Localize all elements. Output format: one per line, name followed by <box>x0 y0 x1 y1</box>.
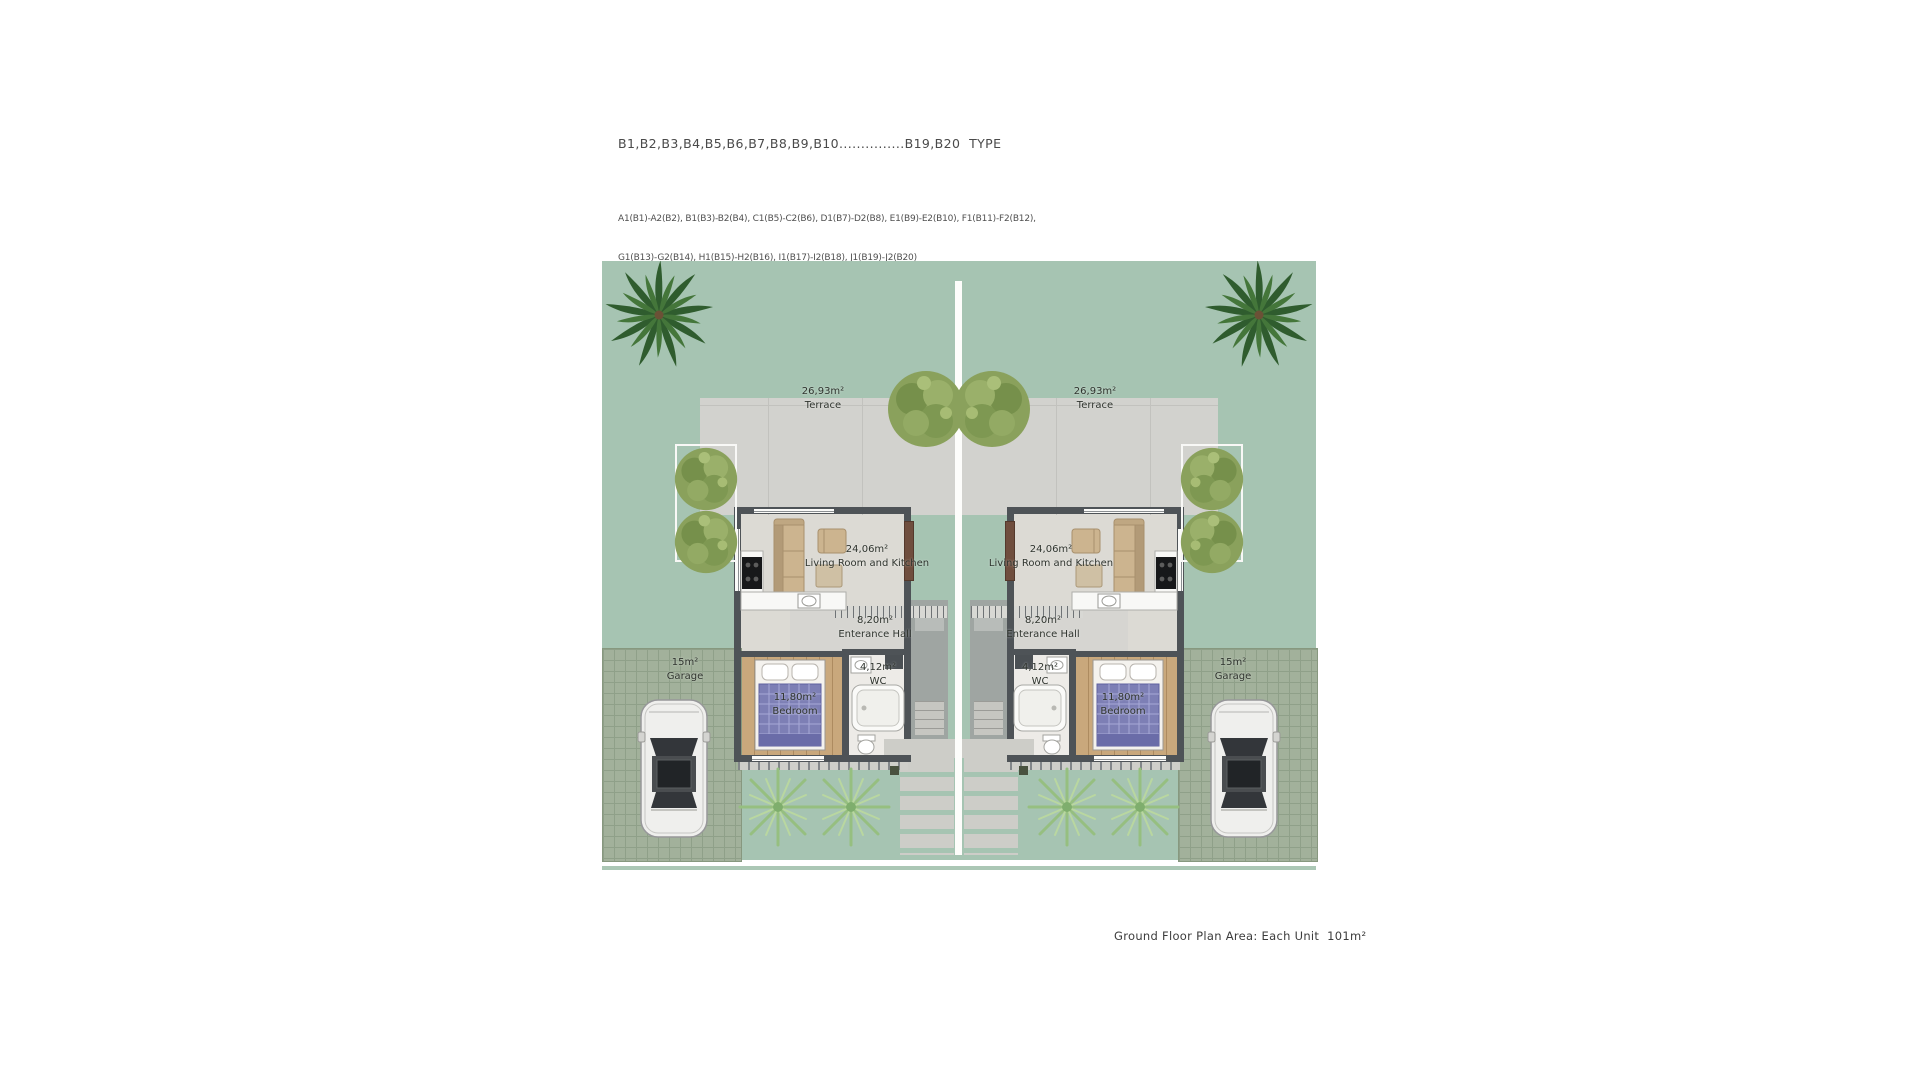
wall-wc-top-right <box>1007 649 1076 655</box>
edge-strip-right <box>1010 762 1180 770</box>
porch-steps-left <box>915 701 944 735</box>
planter-tree-left-2 <box>675 511 737 573</box>
terrace-area-value: 26,93m² <box>1035 385 1155 399</box>
bedroom-area-value: 11,80m² <box>745 691 845 705</box>
terrace-room-name: Terrace <box>1035 399 1155 413</box>
floor-plan-page: B1,B2,B3,B4,B5,B6,B7,B8,B9,B10..........… <box>0 0 1920 1080</box>
edge-strip-left <box>738 762 908 770</box>
garage-label-right: 15m² Garage <box>1183 656 1283 683</box>
bush-left-2 <box>813 769 889 845</box>
garage-area-value: 15m² <box>1183 656 1283 670</box>
window-bedroom-right <box>1094 756 1166 761</box>
party-line <box>955 281 962 855</box>
wall-bedroom-top-right <box>1069 651 1184 657</box>
gate-post-left <box>890 766 899 775</box>
terrace-label-left: 26,93m² Terrace <box>763 385 883 412</box>
bedroom-area-value: 11,80m² <box>1073 691 1173 705</box>
unit-pairing-line-1: A1(B1)-A2(B2), B1(B3)-B2(B4), C1(B5)-C2(… <box>618 213 1036 226</box>
plan-bottom-edge <box>602 866 1316 870</box>
walkway-left <box>900 758 954 855</box>
hall-room-name: Enterance Hall <box>805 628 945 642</box>
living-room-name: Living Room and Kitchen <box>787 557 947 571</box>
living-label-left: 24,06m² Living Room and Kitchen <box>787 543 947 570</box>
living-area-value: 24,06m² <box>787 543 947 557</box>
terrace-label-right: 26,93m² Terrace <box>1035 385 1155 412</box>
wall-bedroom-top-left <box>734 651 849 657</box>
terrace-area-value: 26,93m² <box>763 385 883 399</box>
garage-room-name: Garage <box>1183 670 1283 684</box>
wc-room-name: WC <box>838 675 918 689</box>
palm-tree-left <box>605 261 713 368</box>
wc-area-value: 4,12m² <box>838 661 918 675</box>
window-terrace-left <box>754 509 834 513</box>
hall-label-left: 8,20m² Enterance Hall <box>805 614 945 641</box>
gate-post-right <box>1019 766 1028 775</box>
terrace-seam-v1 <box>768 398 769 515</box>
living-area-value: 24,06m² <box>971 543 1131 557</box>
hall-label-right: 8,20m² Enterance Hall <box>973 614 1113 641</box>
wc-label-right: 4,12m² WC <box>1000 661 1080 688</box>
wall-wc-top-left <box>842 649 911 655</box>
window-terrace-right <box>1084 509 1164 513</box>
bedroom-label-right: 11,80m² Bedroom <box>1073 691 1173 718</box>
wc-room-name: WC <box>1000 675 1080 689</box>
terrace-seam-v2 <box>862 398 863 515</box>
terrace-seam-v3 <box>1056 398 1057 515</box>
garage-area-value: 15m² <box>635 656 735 670</box>
hall-room-name: Enterance Hall <box>973 628 1113 642</box>
hall-area-value: 8,20m² <box>805 614 945 628</box>
terrace-room-name: Terrace <box>763 399 883 413</box>
window-side-right <box>1178 529 1183 591</box>
porch-steps-right <box>974 701 1003 735</box>
garage-label-left: 15m² Garage <box>635 656 735 683</box>
site-plan: 26,93m² Terrace 26,93m² Terrace 24,06m² … <box>602 261 1316 860</box>
bush-left-1 <box>740 769 816 845</box>
living-label-right: 24,06m² Living Room and Kitchen <box>971 543 1131 570</box>
walkway-right <box>964 758 1018 855</box>
wc-label-left: 4,12m² WC <box>838 661 918 688</box>
hall-area-value: 8,20m² <box>973 614 1113 628</box>
living-room-name: Living Room and Kitchen <box>971 557 1131 571</box>
bedroom-label-left: 11,80m² Bedroom <box>745 691 845 718</box>
plan-type-title: B1,B2,B3,B4,B5,B6,B7,B8,B9,B10..........… <box>618 136 1001 151</box>
window-side-left <box>735 529 740 591</box>
terrace-seam-v4 <box>1150 398 1151 515</box>
window-bedroom-left <box>752 756 824 761</box>
garage-room-name: Garage <box>635 670 735 684</box>
plan-caption: Ground Floor Plan Area: Each Unit 101m² <box>1114 929 1366 943</box>
bedroom-room-name: Bedroom <box>1073 705 1173 719</box>
wc-area-value: 4,12m² <box>1000 661 1080 675</box>
bedroom-room-name: Bedroom <box>745 705 845 719</box>
